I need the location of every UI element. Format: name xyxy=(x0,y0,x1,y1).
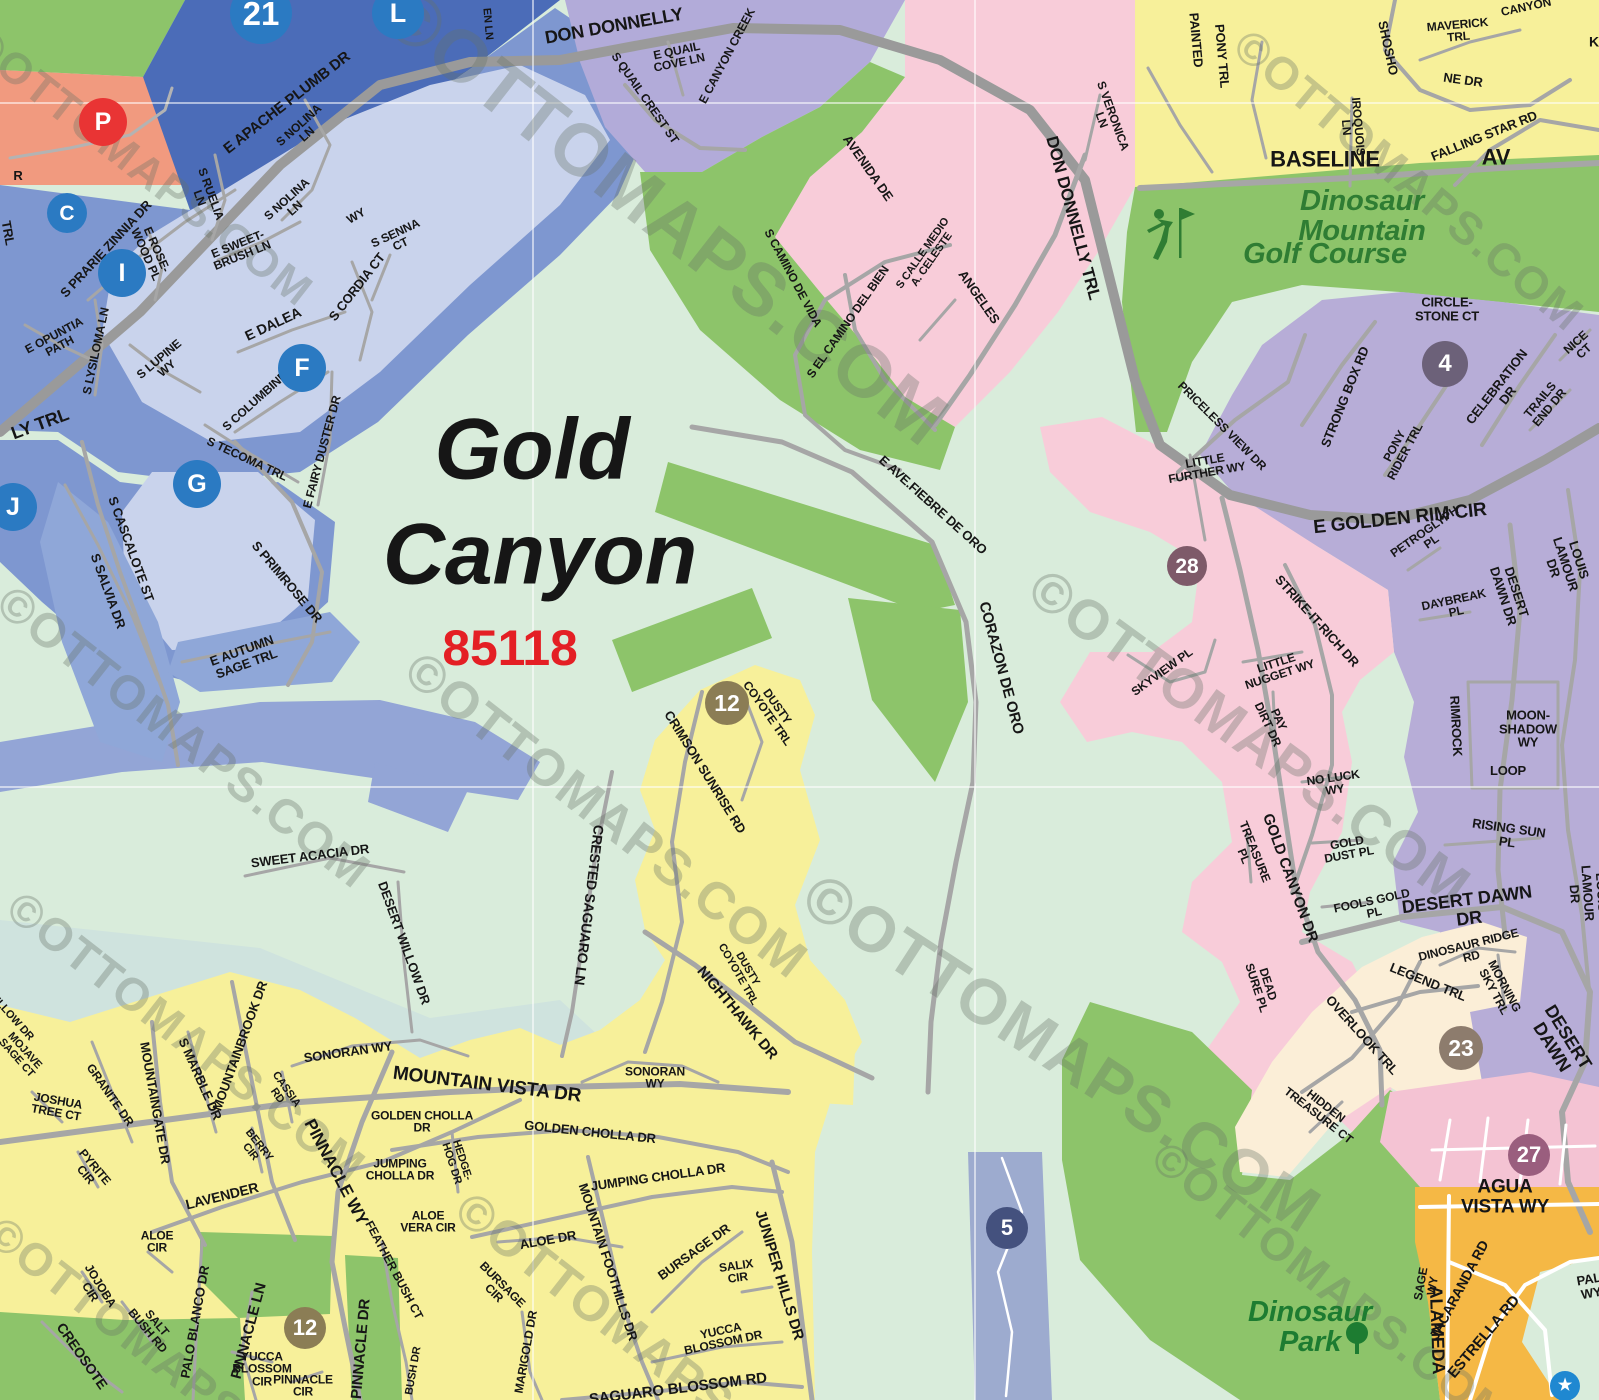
marker-layer: P21LCIFGJ121228423275★ xyxy=(0,0,1599,1400)
map-marker-4: 4 xyxy=(1422,341,1468,387)
map-marker-F: F xyxy=(278,344,326,392)
map-marker-28: 28 xyxy=(1167,546,1207,586)
map-marker-★: ★ xyxy=(1550,1371,1580,1400)
map-marker-C: C xyxy=(47,193,87,233)
map-marker-I: I xyxy=(98,249,146,297)
map-marker-12: 12 xyxy=(284,1307,326,1349)
map-canvas: ©OTTOMAPS.COM©OTTOMAPS.COM©OTTOMAPS.COM©… xyxy=(0,0,1599,1400)
map-marker-L: L xyxy=(372,0,424,39)
map-marker-21: 21 xyxy=(230,0,292,44)
map-marker-G: G xyxy=(173,460,221,508)
map-marker-12: 12 xyxy=(705,681,749,725)
map-marker-J: J xyxy=(0,483,37,531)
map-marker-27: 27 xyxy=(1508,1134,1550,1176)
map-marker-23: 23 xyxy=(1439,1026,1483,1070)
map-marker-P: P xyxy=(79,98,127,146)
map-marker-5: 5 xyxy=(986,1207,1028,1249)
